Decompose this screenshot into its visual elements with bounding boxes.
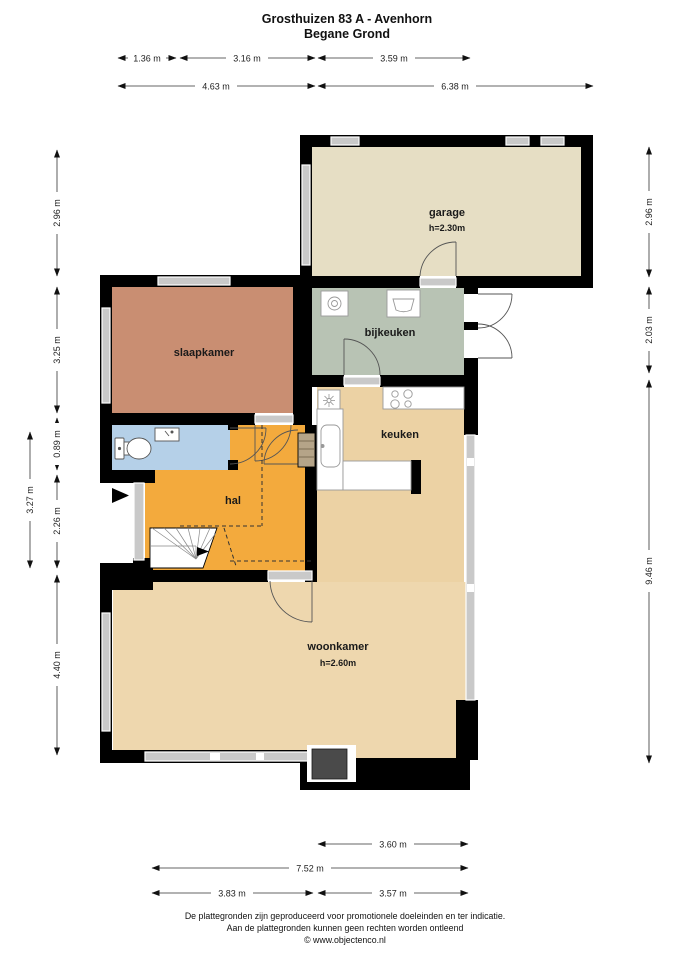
label-garage-height: h=2.30m (429, 223, 465, 233)
dim-top-1: 1.36 m (118, 52, 176, 64)
label-keuken: keuken (381, 429, 419, 441)
svg-text:3.16 m: 3.16 m (233, 54, 261, 64)
dim-bottom-4: 3.57 m (318, 887, 468, 899)
dim-left-4: 2.26 m (51, 475, 63, 568)
toilet-icon (115, 438, 151, 459)
label-woonkamer: woonkamer (306, 641, 369, 653)
cabinet (298, 433, 315, 467)
dim-top-4: 4.63 m (118, 80, 315, 92)
page-title: Grosthuizen 83 A - Avenhorn Begane Grond (262, 12, 432, 41)
washing-machine-icon (321, 291, 348, 316)
door-sill (344, 377, 380, 385)
svg-text:4.40 m: 4.40 m (52, 651, 62, 679)
svg-text:3.83 m: 3.83 m (218, 889, 246, 899)
room-hal-floor-right (230, 425, 305, 572)
footer-copyright: © www.objectenco.nl (304, 935, 386, 945)
svg-text:2.03 m: 2.03 m (644, 316, 654, 344)
door-sill (420, 278, 456, 286)
window-tick (210, 753, 220, 760)
door-exterior-1 (478, 294, 512, 328)
dim-left-3: 0.89 m (51, 418, 63, 470)
rooms (112, 147, 581, 760)
svg-text:3.59 m: 3.59 m (380, 54, 408, 64)
door-lintel (268, 571, 312, 580)
dim-left-1: 2.96 m (51, 150, 63, 276)
footer-disclaimer: De plattegronden zijn geproduceerd voor … (185, 911, 505, 945)
window (145, 752, 309, 761)
window (331, 137, 359, 145)
svg-text:6.38 m: 6.38 m (441, 82, 469, 92)
svg-text:4.63 m: 4.63 m (202, 82, 230, 92)
dim-bottom-3: 3.83 m (152, 887, 313, 899)
svg-text:1.36 m: 1.36 m (133, 54, 161, 64)
svg-text:3.27 m: 3.27 m (25, 486, 35, 514)
svg-text:9.46 m: 9.46 m (644, 557, 654, 585)
footer-line-1: De plattegronden zijn geproduceerd voor … (185, 911, 505, 921)
title-floor: Begane Grond (304, 27, 390, 41)
svg-text:3.25 m: 3.25 m (52, 336, 62, 364)
window (506, 137, 529, 145)
fireplace (307, 745, 356, 782)
hand-basin-icon (155, 428, 179, 441)
ventilation-icon (318, 390, 340, 411)
label-slaapkamer: slaapkamer (174, 347, 235, 359)
dim-left-5: 4.40 m (51, 575, 63, 755)
floorplan-drawing: Grosthuizen 83 A - Avenhorn Begane Grond (0, 0, 679, 960)
window (102, 308, 110, 403)
dim-left-6: 3.27 m (24, 432, 36, 568)
label-hal: hal (225, 495, 241, 507)
dim-right-3: 9.46 m (643, 380, 655, 763)
laundry-sink-icon (387, 290, 420, 317)
door-lintel (255, 415, 293, 423)
kitchen-sink-icon (321, 425, 341, 467)
title-address: Grosthuizen 83 A - Avenhorn (262, 12, 432, 26)
label-garage: garage (429, 207, 465, 219)
footer-line-2: Aan de plattegronden kunnen geen rechten… (227, 923, 464, 933)
door-opening (464, 294, 478, 322)
dim-left-2: 3.25 m (51, 287, 63, 413)
svg-text:3.60 m: 3.60 m (379, 840, 407, 850)
room-woonkamer-floor (113, 582, 468, 752)
floorplan-page: Grosthuizen 83 A - Avenhorn Begane Grond (0, 0, 679, 960)
window (158, 277, 230, 285)
dim-right-2: 2.03 m (643, 287, 655, 373)
svg-text:0.89 m: 0.89 m (52, 430, 62, 458)
dim-top-3: 3.59 m (318, 52, 470, 64)
entrance-arrow-icon (112, 488, 129, 503)
window (302, 165, 310, 265)
dim-top-2: 3.16 m (180, 52, 315, 64)
front-door (134, 483, 144, 560)
window-tick (467, 458, 474, 466)
window-tick (467, 584, 474, 592)
svg-text:3.57 m: 3.57 m (379, 889, 407, 899)
door-exterior-2 (478, 324, 512, 358)
svg-text:2.26 m: 2.26 m (52, 507, 62, 535)
door-opening (464, 330, 478, 358)
window (466, 435, 475, 700)
svg-text:7.52 m: 7.52 m (296, 864, 324, 874)
dim-top-5: 6.38 m (318, 80, 593, 92)
window (102, 613, 110, 731)
window-tick (256, 753, 264, 760)
dim-bottom-1: 3.60 m (318, 838, 468, 850)
dim-right-1: 2.96 m (643, 147, 655, 277)
kitchen-island (343, 461, 411, 490)
window (541, 137, 564, 145)
label-woonkamer-height: h=2.60m (320, 658, 356, 668)
label-bijkeuken: bijkeuken (365, 327, 416, 339)
dim-bottom-2: 7.52 m (152, 862, 468, 874)
svg-text:2.96 m: 2.96 m (52, 199, 62, 227)
svg-text:2.96 m: 2.96 m (644, 198, 654, 226)
